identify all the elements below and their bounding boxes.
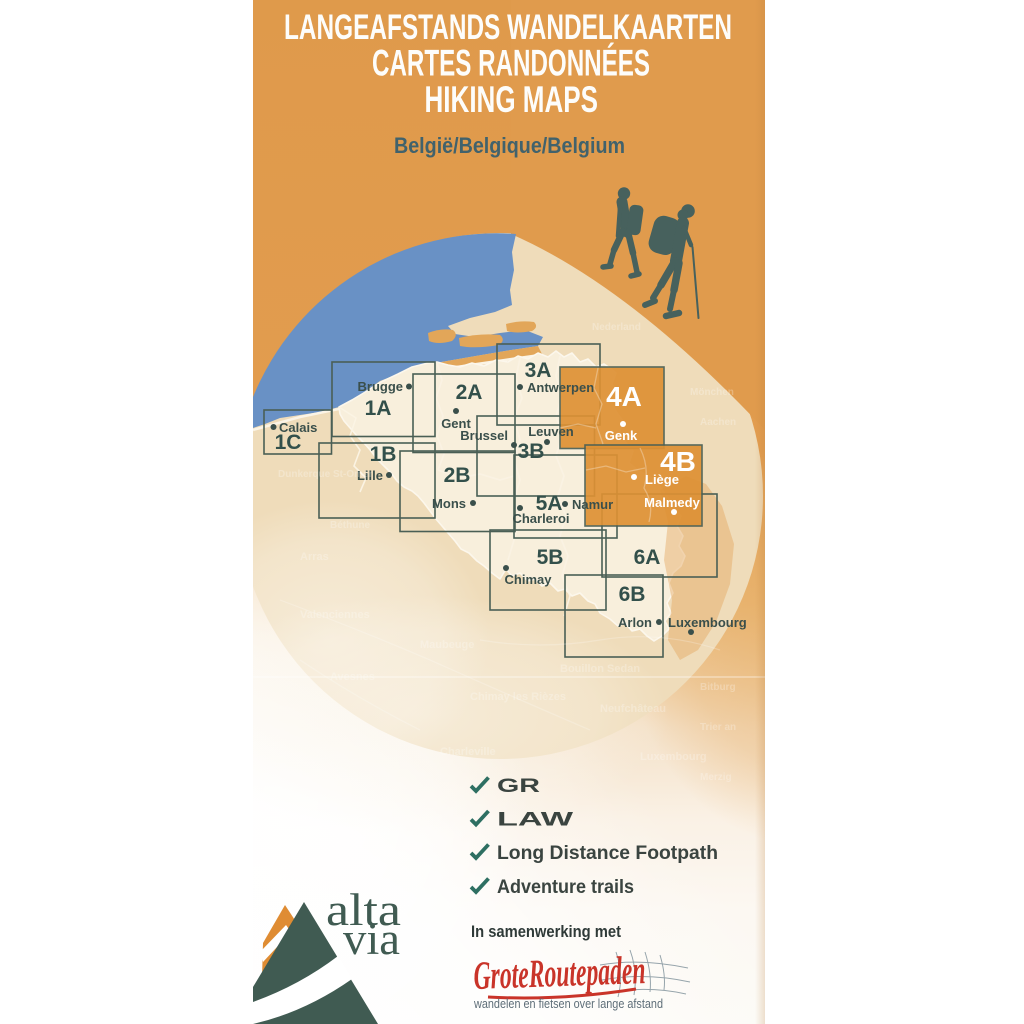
svg-text:Mons: Mons — [432, 496, 466, 511]
svg-text:2A: 2A — [456, 381, 483, 404]
svg-text:Luxembourg: Luxembourg — [668, 615, 747, 630]
svg-text:3A: 3A — [525, 359, 552, 382]
svg-text:Maubeuge: Maubeuge — [420, 639, 474, 651]
svg-text:Charleroi: Charleroi — [512, 511, 569, 526]
svg-text:Liège: Liège — [645, 472, 679, 487]
svg-text:6B: 6B — [619, 583, 646, 606]
svg-text:Genk: Genk — [605, 428, 638, 443]
svg-text:GR: GR — [497, 776, 540, 797]
svg-text:Chimay: Chimay — [505, 572, 553, 587]
svg-text:Neufchâteau: Neufchâteau — [600, 703, 666, 715]
svg-text:Bitburg: Bitburg — [700, 682, 736, 693]
svg-text:LAW: LAW — [497, 810, 573, 831]
svg-text:Malmedy: Malmedy — [644, 495, 700, 510]
svg-text:Brugge: Brugge — [358, 379, 404, 394]
svg-text:Charleville: Charleville — [440, 746, 496, 758]
svg-text:1A: 1A — [365, 397, 392, 420]
svg-text:via: via — [343, 914, 400, 964]
svg-text:België/Belgique/Belgium: België/Belgique/Belgium — [394, 133, 625, 158]
svg-text:Arras: Arras — [300, 551, 329, 563]
svg-text:Antwerpen: Antwerpen — [527, 380, 594, 395]
svg-text:Mönchen: Mönchen — [690, 387, 734, 398]
svg-text:Arlon: Arlon — [618, 615, 652, 630]
svg-text:2B: 2B — [444, 464, 471, 487]
svg-text:Valenciennes: Valenciennes — [300, 609, 370, 621]
svg-text:Adventure trails: Adventure trails — [497, 877, 634, 898]
svg-text:1B: 1B — [370, 443, 397, 466]
svg-text:wandelen en fietsen over lange: wandelen en fietsen over lange afstand — [473, 996, 663, 1011]
svg-text:Brussel: Brussel — [460, 428, 508, 443]
svg-text:Merzig: Merzig — [700, 772, 732, 783]
svg-text:HIKING MAPS: HIKING MAPS — [425, 79, 599, 120]
svg-text:4A: 4A — [606, 381, 642, 412]
svg-text:Aachen: Aachen — [700, 417, 736, 428]
svg-text:Calais: Calais — [279, 420, 317, 435]
svg-text:Dunkerque St-Omer: Dunkerque St-Omer — [278, 469, 373, 480]
svg-text:LANGEAFSTANDS WANDELKAARTEN: LANGEAFSTANDS WANDELKAARTEN — [284, 8, 732, 47]
svg-text:Long Distance Footpath: Long Distance Footpath — [497, 843, 718, 864]
svg-text:6A: 6A — [634, 546, 661, 569]
svg-text:Trier an: Trier an — [700, 722, 736, 733]
svg-text:Leuven: Leuven — [528, 424, 574, 439]
svg-text:Namur: Namur — [572, 497, 613, 512]
svg-text:CARTES RANDONNÉES: CARTES RANDONNÉES — [372, 43, 650, 84]
svg-text:Nederland: Nederland — [592, 322, 641, 333]
svg-text:5B: 5B — [537, 546, 564, 569]
svg-text:In samenwerking met: In samenwerking met — [471, 922, 621, 941]
svg-text:Bouillon Sedan: Bouillon Sedan — [560, 663, 640, 675]
svg-text:Luxembourg: Luxembourg — [640, 751, 707, 763]
svg-text:Chimay les Rièzes: Chimay les Rièzes — [470, 691, 566, 703]
svg-text:Béthune: Béthune — [330, 520, 370, 531]
svg-text:3B: 3B — [518, 440, 545, 463]
